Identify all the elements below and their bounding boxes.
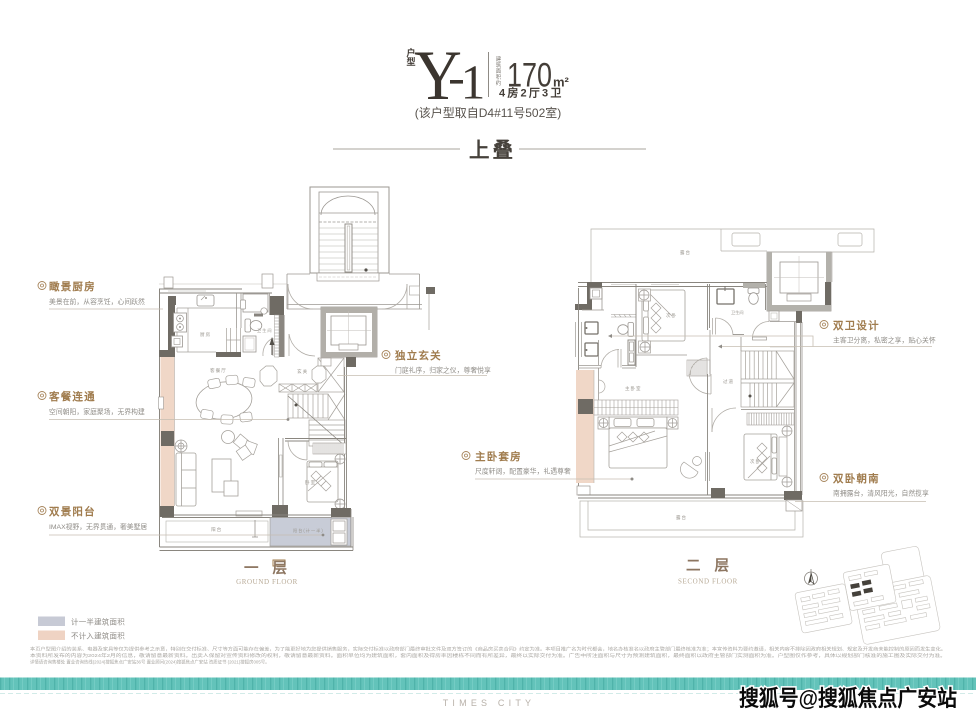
- svg-text:双卫设计: 双卫设计: [832, 319, 880, 332]
- svg-text:不计入建筑面积: 不计入建筑面积: [71, 631, 125, 641]
- svg-text:建: 建: [496, 55, 502, 63]
- svg-text:计一半建筑面积: 计一半建筑面积: [71, 617, 125, 627]
- svg-text:详情请咨询售楼处 置业咨询热线(2024)搜狐焦点广安站36: 详情请咨询售楼处 置业咨询热线(2024)搜狐焦点广安站36号 置业顾问(202…: [30, 659, 270, 666]
- svg-text:积: 积: [496, 74, 502, 81]
- svg-text:次卧: 次卧: [666, 312, 677, 319]
- svg-text:TIMES CITY: TIMES CITY: [443, 698, 536, 708]
- svg-text:二层: 二层: [686, 558, 743, 575]
- svg-text:双景阳台: 双景阳台: [48, 505, 96, 518]
- svg-text:GROUND FLOOR: GROUND FLOOR: [236, 578, 298, 586]
- svg-text:1: 1: [461, 55, 486, 110]
- svg-text:筑: 筑: [496, 61, 502, 69]
- svg-text:本资料所发布的内容为2024年2月的信息，敬请留意最新资料。: 本资料所发布的内容为2024年2月的信息，敬请留意最新资料。出卖人保留对宣传资料…: [30, 652, 946, 659]
- svg-text:客餐厅: 客餐厅: [210, 367, 227, 374]
- svg-text:约: 约: [496, 79, 501, 87]
- svg-text:卫生间: 卫生间: [257, 327, 273, 334]
- svg-text:双卧朝南: 双卧朝南: [832, 472, 880, 485]
- svg-text:尺度轩阔，配置豪华，礼遇尊奢: 尺度轩阔，配置豪华，礼遇尊奢: [475, 467, 571, 476]
- svg-text:(该户型取自D4#11号502室): (该户型取自D4#11号502室): [415, 105, 562, 120]
- svg-text:南拥露台，清风阳光，自然揽享: 南拥露台，清风阳光，自然揽享: [833, 489, 929, 498]
- svg-text:客餐连通: 客餐连通: [48, 390, 96, 403]
- svg-text:美景在前，从容烹饪，心间跃然: 美景在前，从容烹饪，心间跃然: [49, 297, 145, 306]
- svg-text:主客卫分离，私密之享，贴心关怀: 主客卫分离，私密之享，贴心关怀: [833, 336, 936, 345]
- svg-text:独立玄关: 独立玄关: [394, 349, 442, 362]
- svg-text:卫生间: 卫生间: [731, 309, 744, 316]
- svg-text:4房2厅3卫: 4房2厅3卫: [499, 86, 564, 100]
- svg-text:本页户型图介绍的装系、电器及家具等仅为提供参考之示意，特别在: 本页户型图介绍的装系、电器及家具等仅为提供参考之示意，特别在交付标准、尺寸等方面…: [30, 646, 946, 653]
- svg-text:SECOND FLOOR: SECOND FLOOR: [678, 578, 738, 586]
- svg-text:卧室: 卧室: [305, 479, 316, 486]
- svg-text:主卧室: 主卧室: [625, 385, 642, 392]
- svg-text:上叠: 上叠: [469, 139, 516, 162]
- svg-text:过道: 过道: [723, 378, 734, 385]
- svg-text:次卧: 次卧: [750, 458, 761, 465]
- svg-text:露台: 露台: [680, 249, 691, 256]
- svg-text:主卧套房: 主卧套房: [475, 450, 522, 463]
- svg-text:IMAX视野，无界贯通，奢美墅居: IMAX视野，无界贯通，奢美墅居: [49, 522, 147, 531]
- svg-text:门庭礼序，归家之仪，尊奢悦享: 门庭礼序，归家之仪，尊奢悦享: [395, 366, 491, 375]
- svg-text:阳台: 阳台: [211, 526, 222, 533]
- svg-text:搜狐号@搜狐焦点广安站: 搜狐号@搜狐焦点广安站: [739, 686, 957, 711]
- svg-text:Y: Y: [414, 36, 462, 115]
- svg-text:玄关: 玄关: [297, 368, 308, 375]
- svg-text:露台: 露台: [676, 514, 687, 521]
- svg-text:阳台(计一半): 阳台(计一半): [293, 527, 324, 534]
- svg-text:瞰景厨房: 瞰景厨房: [49, 280, 96, 293]
- svg-text:厨房: 厨房: [200, 331, 211, 338]
- svg-text:面: 面: [496, 68, 502, 75]
- svg-text:一层: 一层: [244, 560, 301, 577]
- svg-text:空间朝阳，家庭聚场，无界构建: 空间朝阳，家庭聚场，无界构建: [49, 407, 145, 416]
